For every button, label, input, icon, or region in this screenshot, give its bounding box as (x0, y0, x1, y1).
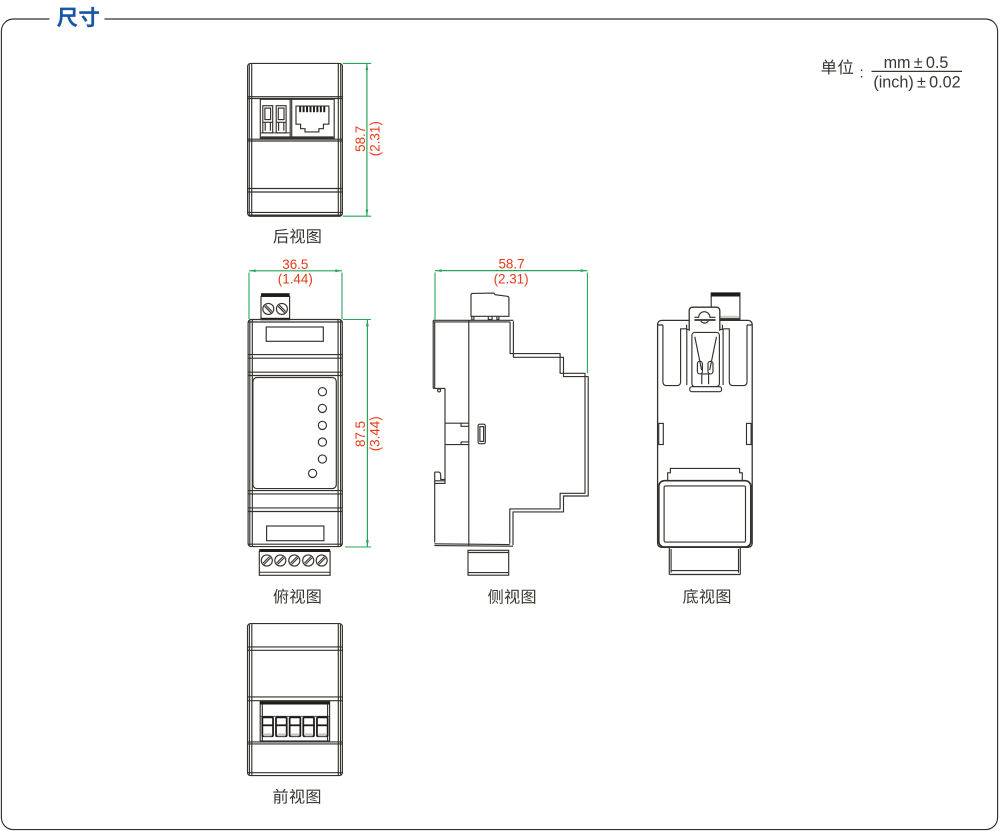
svg-text:58.7: 58.7 (498, 257, 524, 272)
svg-text:58.7: 58.7 (353, 126, 368, 152)
svg-text:(3.44): (3.44) (368, 416, 383, 451)
svg-text:mm ± 0.5: mm ± 0.5 (884, 54, 949, 72)
svg-text:(2.31): (2.31) (367, 121, 382, 156)
svg-text:(2.31): (2.31) (494, 271, 529, 286)
svg-text:(inch) ± 0.02: (inch) ± 0.02 (873, 73, 960, 91)
svg-text:87.5: 87.5 (353, 421, 368, 447)
svg-text::: : (860, 65, 864, 82)
svg-text:(1.44): (1.44) (278, 272, 313, 287)
svg-text:36.5: 36.5 (282, 257, 308, 272)
